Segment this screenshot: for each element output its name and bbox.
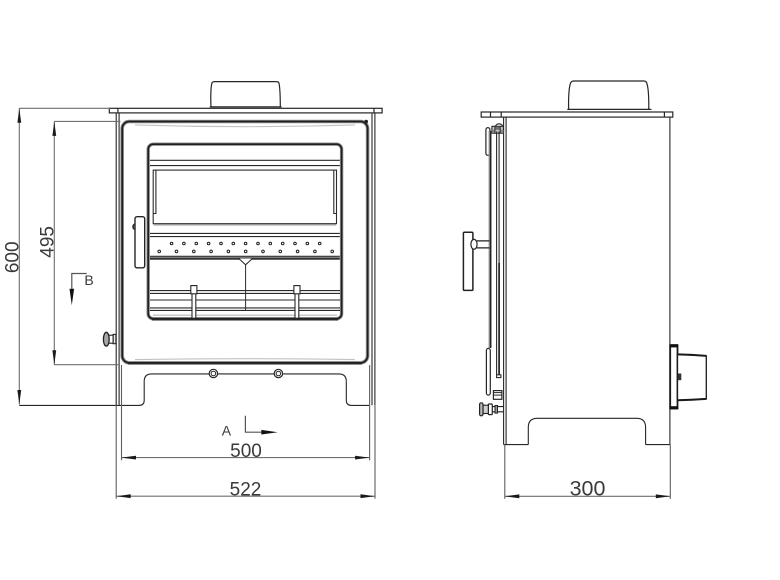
- svg-text:300: 300: [570, 477, 606, 501]
- svg-text:500: 500: [230, 441, 262, 462]
- svg-text:522: 522: [230, 480, 262, 501]
- svg-text:495: 495: [38, 226, 59, 258]
- svg-text:B: B: [84, 272, 93, 288]
- svg-text:600: 600: [3, 241, 24, 273]
- svg-text:A: A: [222, 423, 232, 439]
